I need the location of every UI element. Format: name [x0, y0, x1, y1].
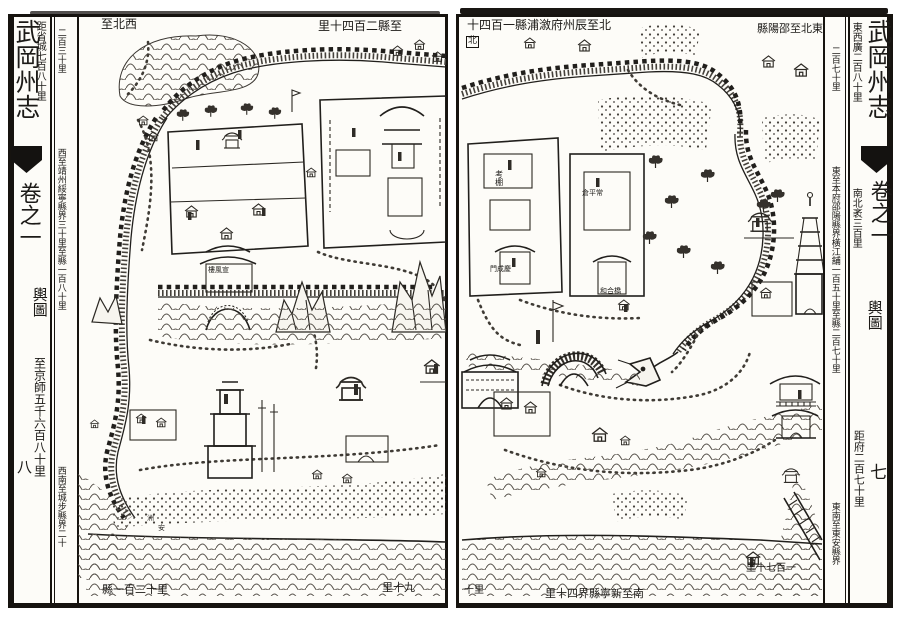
right-margin-note-prefecture: 距府二百七十里 — [852, 430, 864, 507]
right-page-number: 七 — [870, 464, 887, 483]
book-spread: 距省城七百八十里 武岡州志 卷之一 輿圖 至京師五千六百八十里 八 — [0, 0, 900, 621]
left-page-title: 武岡州志 — [12, 19, 40, 119]
left-volume-label: 卷之一 — [15, 182, 40, 248]
right-margin-rule-2 — [848, 17, 850, 605]
right-margin-rule — [845, 17, 846, 605]
right-margin-note-width: 東西廣二百八十里 — [850, 22, 861, 102]
left-map-drawing — [78, 17, 446, 605]
right-margin-note-length: 南北袤三百里 — [850, 188, 861, 248]
right-volume-label: 卷之一 — [866, 180, 891, 246]
left-margin-rule-2 — [54, 17, 55, 605]
right-column-rule — [823, 17, 825, 605]
left-margin-note-capital: 至京師五千六百八十里 — [32, 357, 45, 477]
left-margin-rule — [50, 17, 52, 605]
right-page-title: 武岡州志 — [864, 19, 892, 119]
left-section-label: 輿圖 — [31, 287, 48, 317]
right-map-drawing — [460, 17, 823, 605]
left-page-number: 八 — [17, 459, 32, 476]
right-section-label: 輿圖 — [866, 300, 883, 330]
